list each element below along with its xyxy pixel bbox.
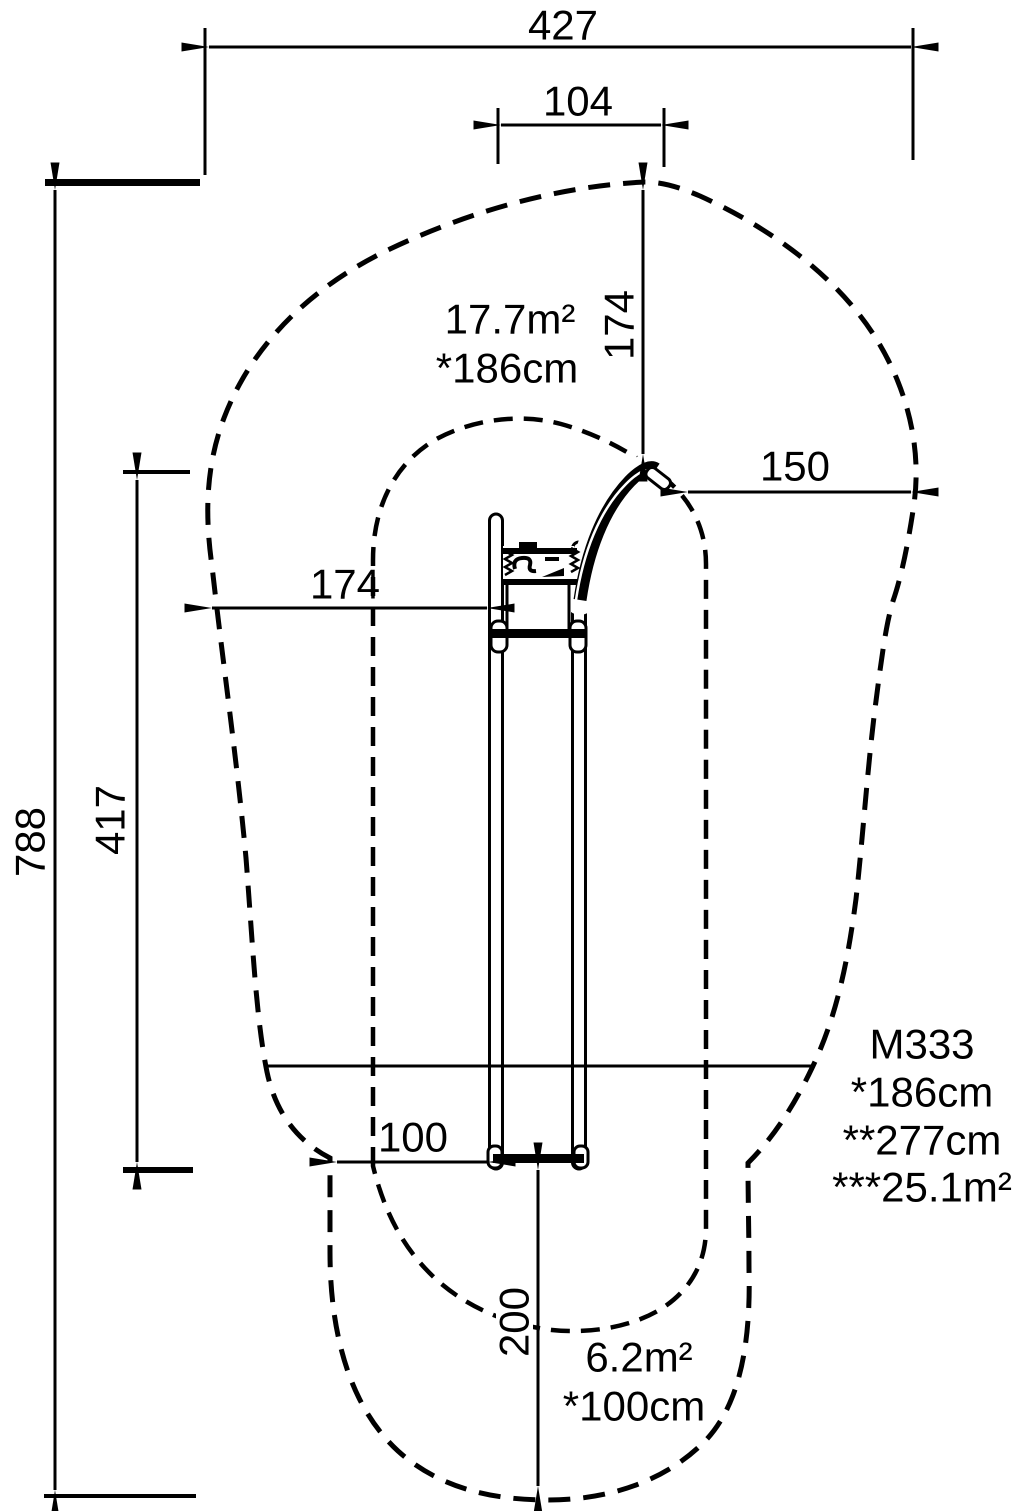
upper-cross-member — [490, 629, 587, 638]
slide-structure — [488, 465, 673, 1169]
dim-100-value: 100 — [378, 1114, 448, 1161]
dim-174-left-value: 174 — [310, 561, 380, 608]
lower-zone-fall-height: *100cm — [563, 1383, 705, 1430]
bottom-cross-member — [493, 1154, 584, 1163]
dim-100: 100 — [337, 1114, 488, 1163]
dim-104-value: 104 — [543, 78, 613, 125]
product-spec3: ***25.1m² — [832, 1164, 1012, 1211]
product-spec1: *186cm — [851, 1069, 993, 1116]
dim-788-tick-top — [45, 179, 200, 186]
dim-788-tick-bottom — [44, 1494, 196, 1498]
upper-zone-label: 17.7m² *186cm — [436, 296, 578, 392]
upper-zone-area: 17.7m² — [445, 296, 576, 343]
dim-150-value: 150 — [760, 443, 830, 490]
upper-zone-fall-height: *186cm — [436, 345, 578, 392]
dim-174-top: 174 — [596, 190, 644, 454]
platform-top-edge — [501, 548, 577, 554]
dim-104: 104 — [498, 78, 664, 168]
dim-200: 200 — [491, 1170, 539, 1486]
platform-top-tab — [519, 542, 537, 549]
dim-417-tick-top — [123, 470, 190, 474]
dim-174-top-value: 174 — [596, 290, 643, 360]
slide-left-rail — [490, 514, 503, 1169]
dim-417: 417 — [87, 470, 194, 1173]
dim-150: 150 — [688, 443, 911, 493]
product-model: M333 — [869, 1021, 974, 1068]
product-label: M333 *186cm **277cm ***25.1m² — [832, 1021, 1012, 1211]
dim-417-tick-bottom — [123, 1167, 193, 1173]
lower-zone-label: 6.2m² *100cm — [563, 1334, 705, 1430]
dim-174-left: 174 — [212, 561, 487, 609]
product-spec2: **277cm — [843, 1117, 1002, 1164]
dim-200-value: 200 — [491, 1287, 538, 1357]
dim-417-value: 417 — [87, 785, 134, 855]
installation-plan-drawing: 427 104 174 150 174 788 417 100 — [0, 0, 1024, 1511]
lower-zone-area: 6.2m² — [585, 1334, 692, 1381]
platform-bottom-edge — [501, 579, 577, 585]
plan-canvas: 427 104 174 150 174 788 417 100 — [0, 0, 1024, 1511]
dim-788-value: 788 — [7, 807, 54, 877]
dim-427-value: 427 — [528, 2, 598, 49]
